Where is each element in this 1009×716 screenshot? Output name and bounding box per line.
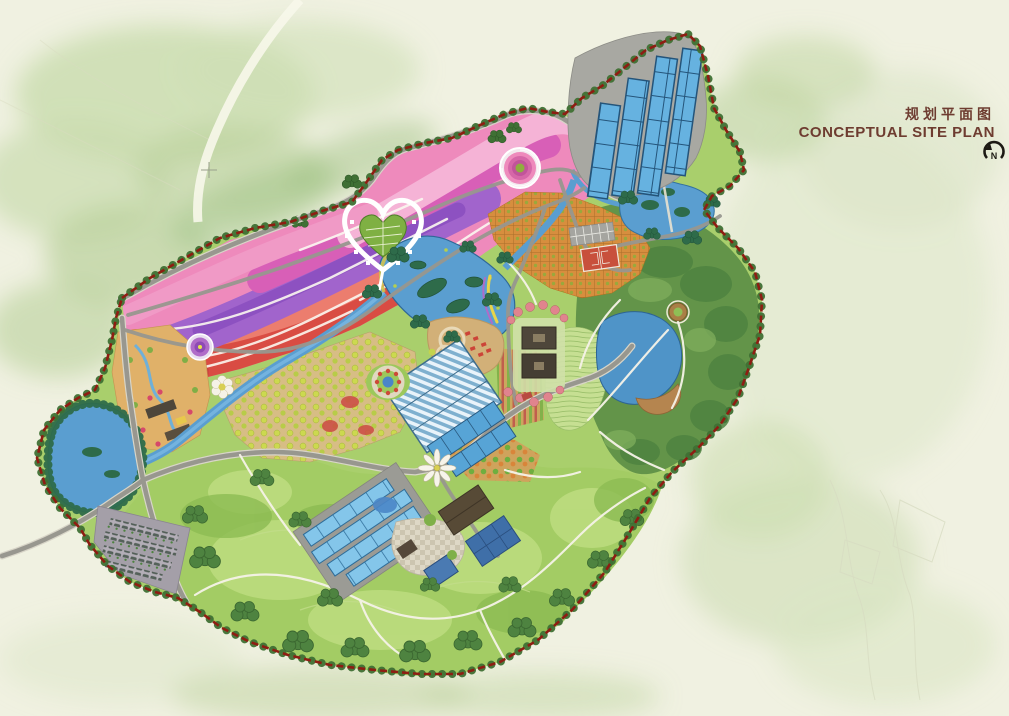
round-plaza xyxy=(187,334,213,360)
plan-title-chinese: 规划平面图 xyxy=(799,106,995,124)
north-arrow-icon: N xyxy=(985,142,1004,161)
sports-courts xyxy=(581,245,620,272)
spiral-plaza xyxy=(500,148,540,188)
conceptual-site-plan: 规划平面图 CONCEPTUAL SITE PLAN N xyxy=(0,0,1009,716)
plan-title-english: CONCEPTUAL SITE PLAN xyxy=(799,124,995,143)
title-block: 规划平面图 CONCEPTUAL SITE PLAN xyxy=(799,106,995,142)
mandala-garden xyxy=(366,364,410,400)
north-label: N xyxy=(991,151,998,161)
round-lookout xyxy=(667,301,689,323)
